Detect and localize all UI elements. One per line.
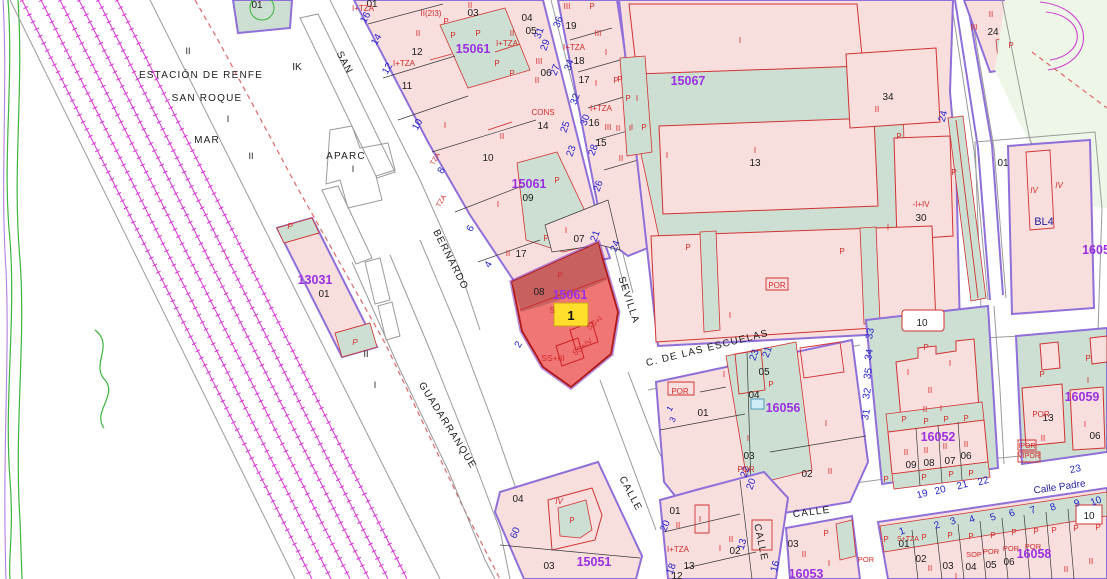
map-label: IK	[292, 62, 302, 73]
map-label: 14	[537, 121, 549, 132]
map-label: II	[989, 10, 993, 19]
building-30-polygon	[894, 136, 953, 240]
map-label: 07	[944, 456, 956, 467]
map-label: II	[506, 249, 510, 258]
map-label: 04	[748, 390, 760, 401]
map-label: -I+IV	[912, 200, 930, 209]
map-label: 05	[758, 367, 770, 378]
map-label: 17	[578, 75, 590, 86]
map-label: II(2I3)	[421, 9, 442, 18]
map-label: I	[636, 94, 638, 103]
map-label: 12	[411, 47, 423, 58]
map-label: II	[619, 154, 623, 163]
map-label: P	[494, 59, 499, 68]
map-label: II	[802, 550, 806, 559]
map-label: II	[924, 446, 928, 455]
map-label: I	[907, 368, 909, 377]
map-label: 24	[987, 27, 999, 38]
map-label: I	[666, 151, 668, 160]
map-label: 03	[787, 539, 799, 550]
map-label: II	[904, 448, 908, 457]
map-label: P	[951, 168, 956, 177]
map-label: P	[641, 123, 646, 132]
map-label: II	[828, 467, 832, 476]
map-label: I+TZA	[590, 104, 613, 113]
map-label: I	[955, 572, 957, 579]
map-label: II	[923, 405, 927, 414]
map-label: POR	[737, 465, 755, 474]
map-label: 01	[697, 408, 709, 419]
patio-polygon	[700, 231, 720, 332]
map-label: I+TZA	[563, 43, 586, 52]
map-label: 16052	[921, 430, 956, 444]
map-label: BL4	[1034, 216, 1054, 228]
map-label: 11	[402, 81, 413, 92]
map-label: 01	[318, 289, 330, 300]
map-label: I	[949, 359, 951, 368]
map-label: SAN ROQUE	[172, 93, 243, 104]
map-label: P	[883, 475, 888, 484]
cadastral-map: 1 ESTACIÓN DE RENFESAN ROQUEMARSANAPARCB…	[0, 0, 1107, 579]
map-label: II	[928, 386, 932, 395]
map-label: 06	[1003, 557, 1015, 568]
map-label: I+TZA	[393, 59, 416, 68]
map-label: I	[374, 380, 377, 390]
map-label: IV	[1055, 181, 1063, 190]
map-label: I	[940, 404, 942, 413]
map-label: I	[565, 226, 567, 235]
map-label: I	[747, 434, 749, 443]
map-label: P	[557, 271, 562, 280]
map-label: P	[990, 531, 995, 540]
map-label: P	[943, 415, 948, 424]
map-label: S	[549, 306, 554, 315]
block-15067[interactable]	[619, 0, 960, 346]
map-label: II	[616, 124, 620, 133]
map-label: I+TZA	[496, 39, 519, 48]
map-label: SS+III	[541, 353, 564, 363]
map-label: P	[509, 69, 514, 78]
map-label: 01	[251, 0, 263, 11]
map-label: 09	[522, 193, 534, 204]
map-label: 03	[743, 451, 755, 462]
map-label: I	[352, 164, 355, 174]
map-label: P	[896, 132, 901, 141]
map-label: 10	[916, 318, 928, 329]
map-label: I+TZA	[667, 545, 690, 554]
map-label: P	[1085, 354, 1090, 363]
map-label: P	[823, 529, 828, 538]
map-label: II	[500, 132, 504, 141]
map-label: POR	[671, 387, 689, 396]
map-label: P	[963, 414, 968, 423]
map-label: I	[595, 79, 597, 88]
building-polygon	[1090, 336, 1107, 364]
map-label: I	[739, 36, 741, 45]
map-label: I	[719, 544, 721, 553]
marker-label: 1	[567, 308, 574, 323]
map-label: P	[1039, 370, 1044, 379]
map-label: P	[443, 17, 448, 26]
map-label: 15061	[456, 42, 491, 56]
map-label: 1605	[1082, 243, 1107, 257]
building-polygon	[629, 4, 863, 74]
map-label: II	[185, 46, 190, 56]
map-label: P	[921, 473, 926, 482]
map-label: I	[444, 121, 446, 130]
map-label: P	[554, 176, 559, 185]
map-label: III	[564, 2, 571, 11]
map-label: 19	[565, 21, 577, 32]
map-label: 16056	[766, 401, 801, 415]
map-label: II	[535, 76, 539, 85]
map-label: 30	[915, 213, 927, 224]
map-label: ESTACIÓN DE RENFE	[139, 68, 263, 81]
building-13-polygon	[659, 118, 878, 214]
map-label: 04	[521, 13, 533, 24]
map-label: II	[468, 1, 472, 10]
map-label: I	[825, 419, 827, 428]
map-label: 06	[960, 451, 972, 462]
map-label: 04	[965, 562, 977, 573]
building-34-polygon	[846, 48, 940, 128]
patio-polygon	[836, 520, 856, 560]
map-label: 05	[985, 560, 997, 571]
map-label: I	[227, 114, 230, 124]
map-label: 10	[482, 153, 494, 164]
map-label: POR	[768, 281, 786, 290]
map-label: P	[543, 234, 548, 243]
map-label: II	[964, 440, 968, 449]
map-label: 16053	[789, 567, 824, 579]
map-label: P	[968, 532, 973, 541]
map-label: P	[923, 343, 928, 352]
map-label: IV	[1030, 186, 1038, 195]
map-label: 06	[1089, 431, 1101, 442]
map-label: P	[921, 533, 926, 542]
map-label: 15061	[512, 177, 547, 191]
map-label: II	[875, 105, 879, 114]
map-label: P	[287, 222, 293, 231]
map-label: I	[754, 146, 756, 155]
map-label: II	[363, 349, 368, 359]
map-label: I	[1084, 420, 1086, 429]
map-label: I	[887, 223, 889, 232]
map-label: 15061	[553, 288, 588, 302]
map-label: II	[943, 442, 947, 451]
map-label: 07	[573, 234, 585, 245]
map-label: III	[536, 57, 543, 66]
map-label: P	[901, 415, 906, 424]
map-label: I	[497, 200, 499, 209]
map-label: S+TZA	[897, 536, 919, 543]
map-label: I	[828, 559, 830, 568]
map-label: 04	[512, 494, 524, 505]
map-label: P	[617, 75, 622, 84]
map-label: II	[676, 521, 680, 530]
map-label: P	[1073, 524, 1078, 533]
map-label: P	[923, 417, 928, 426]
map-label: 13031	[298, 273, 333, 287]
map-label: III	[595, 29, 602, 38]
map-label: P	[968, 469, 973, 478]
patio-polygon	[860, 227, 880, 324]
map-label: I	[729, 311, 731, 320]
map-label: I+TZA	[352, 4, 375, 13]
map-label: II	[248, 151, 253, 161]
map-label: III	[605, 123, 612, 132]
map-label: II	[1064, 565, 1068, 574]
building-polygon	[1040, 342, 1060, 370]
map-label: 15051	[577, 555, 612, 569]
map-label: II	[928, 564, 932, 573]
map-label: 01	[997, 158, 1009, 169]
map-label: 02	[915, 554, 927, 565]
cadastral-map-viewport[interactable]: 1 ESTACIÓN DE RENFESAN ROQUEMARSANAPARCB…	[0, 0, 1107, 579]
map-label: 34	[882, 92, 894, 103]
map-label: P	[839, 247, 844, 256]
map-label: 17	[515, 249, 527, 260]
map-label: IV	[555, 497, 563, 506]
map-label: P	[1008, 41, 1013, 50]
map-label: II	[416, 29, 420, 38]
map-label: P	[768, 380, 773, 389]
map-label: POR	[1003, 544, 1020, 553]
map-label: P	[352, 338, 358, 347]
map-label: 09	[905, 460, 917, 471]
map-label: P	[948, 470, 953, 479]
map-label: POR	[1032, 410, 1050, 419]
map-label: CONS	[531, 108, 554, 117]
map-label: 13	[683, 561, 695, 572]
map-label: APARC	[326, 151, 366, 162]
map-label: 15067	[671, 74, 706, 88]
map-label: 02	[801, 469, 813, 480]
map-label: II	[1041, 434, 1045, 443]
map-label: P	[1033, 527, 1038, 536]
map-label: IPOR	[1018, 443, 1035, 450]
map-label: I	[629, 124, 631, 133]
map-label: 16059	[1065, 390, 1100, 404]
map-label: 10	[1083, 511, 1095, 522]
map-label: 13	[749, 158, 761, 169]
map-label: I	[723, 370, 725, 379]
map-label: P	[1051, 526, 1056, 535]
map-label: II	[510, 29, 514, 38]
map-label: MAR	[194, 135, 220, 146]
map-label: II	[1089, 557, 1093, 566]
map-label: P	[475, 29, 480, 38]
map-label: I	[605, 48, 607, 57]
map-label: POR	[858, 555, 875, 564]
map-label: P	[625, 94, 630, 103]
map-label: P	[450, 31, 455, 40]
map-label: 08	[923, 458, 935, 469]
map-label: I	[1087, 376, 1089, 385]
map-label: 03	[543, 561, 555, 572]
map-label: III	[971, 23, 978, 32]
map-label: P	[883, 535, 888, 544]
map-label: I	[699, 515, 701, 524]
map-label: 01	[669, 506, 681, 517]
map-label: 08	[533, 287, 545, 298]
map-label: P	[1095, 523, 1100, 532]
map-label: II	[729, 535, 733, 544]
map-label: POR	[1025, 542, 1042, 551]
selected-address-marker: 1	[554, 303, 588, 326]
map-label: P	[685, 243, 690, 252]
map-label: P	[569, 516, 574, 525]
map-label: POR	[983, 547, 1000, 556]
map-label: I	[631, 123, 633, 132]
map-label: VIPOR	[1018, 453, 1040, 460]
map-label: 03	[942, 561, 954, 572]
map-label: P	[947, 531, 952, 540]
map-label: P	[1011, 528, 1016, 537]
map-label: SOP	[966, 550, 982, 559]
map-label: P	[589, 2, 594, 11]
